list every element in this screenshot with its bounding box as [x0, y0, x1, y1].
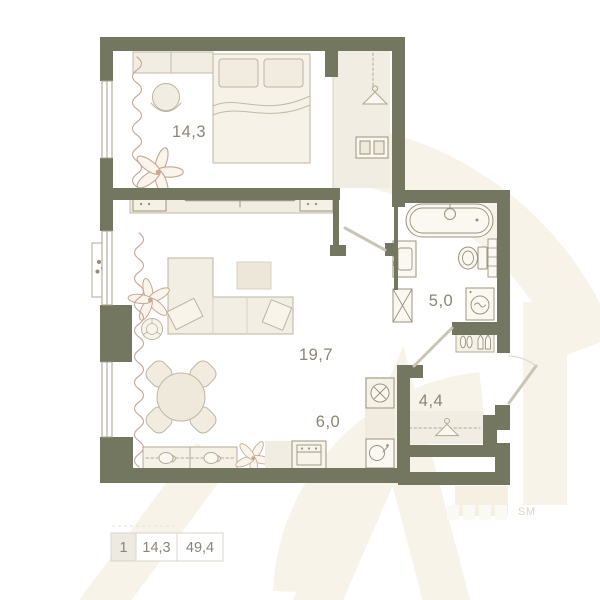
bathroom-door-leaf: [414, 328, 452, 366]
wall-right-protrusion: [483, 415, 497, 448]
wall-kitchen-stub: [397, 365, 423, 378]
window-bedroom: [102, 81, 112, 158]
stove: [292, 441, 326, 469]
watermark-sm-label: SM: [518, 506, 536, 518]
cooker-hood: [366, 378, 394, 408]
windows: [102, 81, 112, 437]
kitchen-area-label: 6,0: [316, 413, 340, 431]
pouf: [142, 319, 163, 340]
counter-segment: [265, 441, 293, 469]
wall-right-lower-a: [495, 405, 510, 430]
drawer-cabinet: [356, 137, 388, 158]
living-room-door-leaf: [345, 228, 385, 250]
bedroom-area-label: 14,3: [172, 123, 206, 141]
wall-bedroom: [113, 188, 340, 200]
shoe-icon: [460, 336, 465, 348]
window-living-1: [102, 231, 112, 305]
bed: [213, 54, 310, 163]
dining-table: [157, 373, 205, 421]
towel-rail: [488, 239, 497, 277]
floor-plan-drawing: 14,3 19,7 5,0 6,0 4,4 1 14,3 49,4 SM: [0, 0, 600, 600]
shoe-icon: [467, 336, 472, 348]
wall-top: [100, 37, 405, 51]
wall-bottom-main: [100, 468, 410, 483]
hall-area-label: 4,4: [419, 392, 443, 410]
armchair: [151, 84, 181, 112]
wall-left-b: [100, 158, 113, 231]
legend-living-area: 14,3: [142, 540, 170, 556]
bathroom-area-label: 5,0: [429, 292, 453, 310]
washing-machine: [466, 288, 494, 320]
boot-icon: [478, 335, 483, 349]
wall-stub-top: [325, 51, 338, 77]
floor-plan-page: 14,3 19,7 5,0 6,0 4,4 1 14,3 49,4 SM: [0, 0, 600, 600]
living-room-furniture: [124, 196, 333, 467]
wall-bathroom-bottom: [452, 322, 510, 335]
wall-right-upper: [392, 37, 405, 207]
boot-icon: [486, 335, 491, 349]
wall-right-lower-b: [495, 443, 510, 485]
legend-total-area: 49,4: [186, 540, 214, 556]
closet: [133, 52, 213, 73]
wall-bottom-band: [398, 472, 510, 485]
wall-stub-foot: [330, 245, 346, 256]
window-living-2: [102, 362, 112, 437]
wall-left-pier: [100, 305, 132, 362]
toilet: [459, 247, 488, 269]
wall-bathroom-top: [397, 190, 510, 203]
wardrobe-floor: [333, 51, 390, 188]
coffee-table: [237, 262, 271, 289]
wardrobe-corridor: [333, 51, 390, 188]
kitchen-counter: [143, 447, 237, 470]
bathtub: [406, 204, 493, 237]
curtain: [133, 57, 142, 187]
curtain: [135, 233, 144, 467]
wall-left-a: [100, 37, 113, 81]
sofa: [167, 258, 293, 334]
living-area-label: 19,7: [299, 346, 333, 364]
pillow: [264, 59, 303, 87]
wall-hall-bottom: [398, 445, 495, 457]
pillow: [219, 59, 258, 87]
dining-set: [143, 358, 220, 437]
legend-rooms-count: 1: [119, 540, 127, 556]
wall-stub-thin: [333, 200, 339, 247]
ventilation-shaft: [393, 289, 412, 322]
wall-bathroom-left: [394, 205, 398, 290]
bedroom-furniture: [126, 52, 310, 202]
kitchen-sink: [366, 439, 394, 468]
